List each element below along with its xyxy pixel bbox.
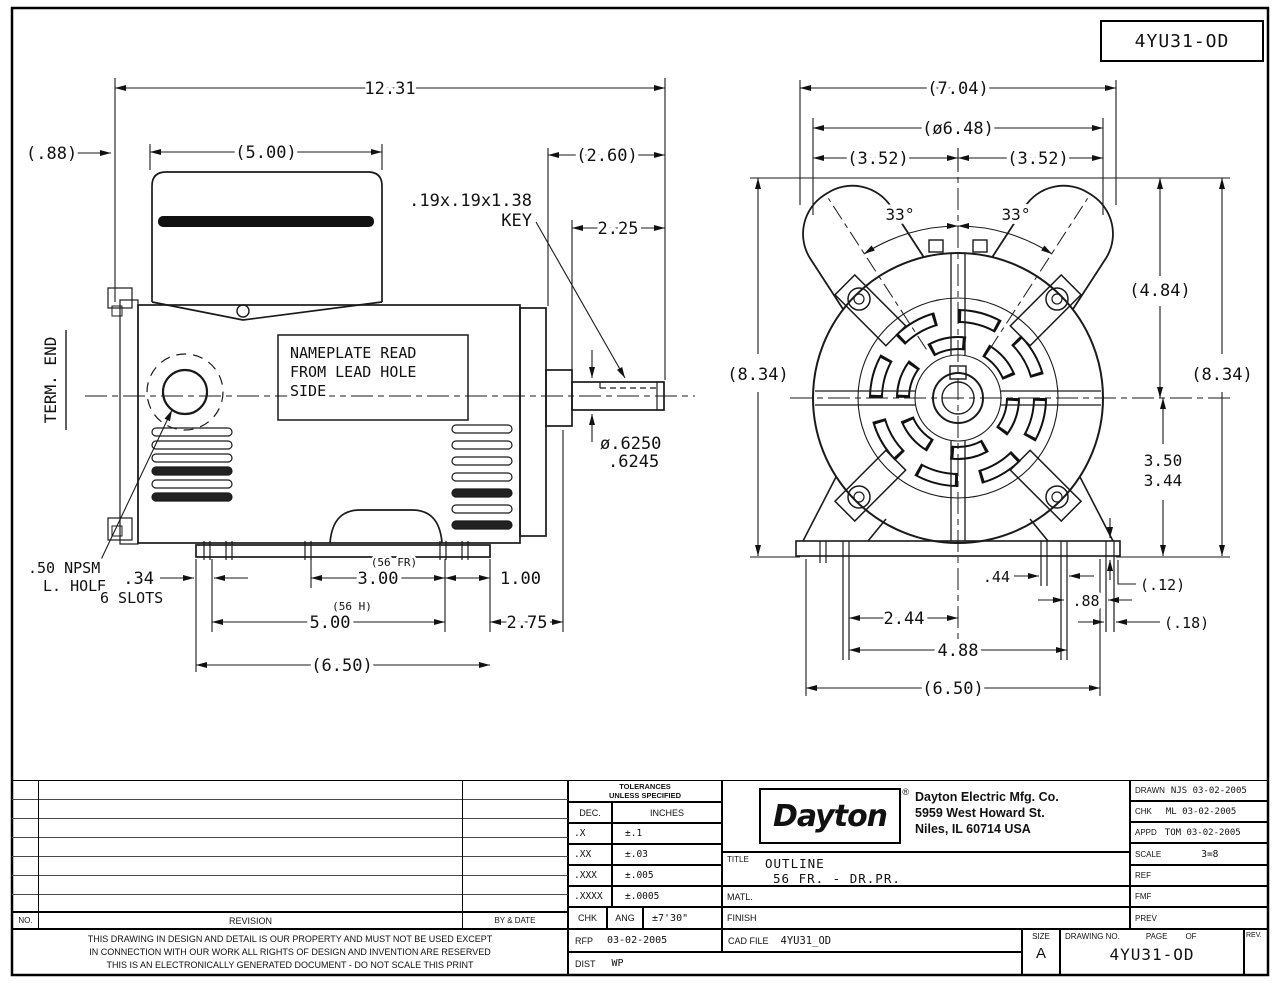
company-name: Dayton Electric Mfg. Co. [915, 789, 1059, 805]
revision-no-header: NO. [12, 912, 39, 929]
tol-val-xxxx: ±.0005 [612, 886, 722, 907]
size-cell: SIZE A [1022, 929, 1060, 975]
drawing-no-cell: DRAWING NO. PAGE OF 4YU31-OD [1060, 929, 1244, 975]
company-address-2: Niles, IL 60714 USA [915, 821, 1059, 837]
title-line-2: 56 FR. - DR.PR. [773, 871, 901, 886]
registered-mark: ® [902, 787, 909, 797]
of-label: OF [1185, 932, 1196, 941]
tol-ang-label: ANG [607, 907, 643, 929]
approval-row-scale: SCALE 3=8 [1130, 843, 1268, 865]
tolerance-col-inches: INCHES [612, 802, 722, 823]
company-info: Dayton Electric Mfg. Co. 5959 West Howar… [915, 789, 1059, 837]
tol-dec-xx: .XX [568, 844, 612, 865]
page-label: PAGE [1146, 932, 1168, 941]
tol-dec-x: .X [568, 823, 612, 844]
drawing-sheet: 12.31 (.88) (5.00) (2.60) 2.25 .19x.19x1… [0, 0, 1280, 1007]
disclaimer: THIS DRAWING IN DESIGN AND DETAIL IS OUR… [12, 929, 568, 975]
tolerance-header: TOLERANCES UNLESS SPECIFIED [568, 780, 722, 802]
revision-header: REVISION [38, 912, 463, 929]
rev-cell: REV. [1244, 929, 1268, 975]
title-label: TITLE [727, 855, 749, 864]
approval-row-fmf: FMF [1130, 886, 1268, 907]
tol-dec-xxx: .XXX [568, 865, 612, 886]
cad-file-cell: CAD FILE 4YU31_OD [722, 929, 1022, 952]
rev-label: REV. [1246, 932, 1267, 939]
approval-row-chk: CHK ML 03-02-2005 [1130, 801, 1268, 822]
title-line-1: OUTLINE [765, 856, 825, 871]
cad-file-value: 4YU31_OD [781, 935, 832, 947]
title-cell: TITLE OUTLINE 56 FR. - DR.PR. [722, 852, 1130, 886]
company-logo: Dayton [773, 799, 887, 834]
disclaimer-line-2: IN CONNECTION WITH OUR WORK ALL RIGHTS O… [13, 946, 567, 959]
tol-val-x: ±.1 [612, 823, 722, 844]
dist-row: DIST WP [568, 952, 1022, 975]
company-address-1: 5959 West Howard St. [915, 805, 1059, 821]
cad-file-label: CAD FILE [728, 936, 769, 946]
size-value: A [1023, 945, 1059, 962]
approval-row-ref: REF [1130, 865, 1268, 886]
revision-by-date-header: BY & DATE [462, 912, 568, 929]
drawing-no-label: DRAWING NO. [1065, 932, 1120, 941]
approval-row-appd: APPD TOM 03-02-2005 [1130, 822, 1268, 843]
dist-value: WP [612, 958, 624, 969]
tol-dec-xxxx: .XXXX [568, 886, 612, 907]
tolerance-col-dec: DEC. [568, 802, 612, 823]
disclaimer-line-3: THIS IS AN ELECTRONICALLY GENERATED DOCU… [13, 959, 567, 972]
dist-label: DIST [575, 959, 596, 969]
approval-row-prev: PREV [1130, 907, 1268, 929]
title-block: NO. REVISION BY & DATE THIS DRAWING IN D… [0, 0, 1280, 1007]
rfp-date: 03-02-2005 [607, 935, 667, 946]
tol-ang-value: ±7'30" [643, 907, 722, 929]
company-logo-box: Dayton ® [759, 788, 901, 844]
tol-val-xx: ±.03 [612, 844, 722, 865]
tol-val-xxx: ±.005 [612, 865, 722, 886]
company-block: Dayton ® Dayton Electric Mfg. Co. 5959 W… [722, 780, 1130, 852]
rfp-row: RFP 03-02-2005 [568, 929, 722, 952]
disclaimer-line-1: THIS DRAWING IN DESIGN AND DETAIL IS OUR… [13, 933, 567, 946]
drawing-number-value: 4YU31-OD [1061, 945, 1243, 964]
approval-row-drawn: DRAWN NJS 03-02-2005 [1130, 780, 1268, 801]
finish-cell: FINISH [722, 907, 1130, 929]
tol-chk-label: CHK [568, 907, 607, 929]
size-label: SIZE [1023, 932, 1059, 941]
matl-cell: MATL. [722, 886, 1130, 907]
rfp-label: RFP [575, 936, 593, 946]
